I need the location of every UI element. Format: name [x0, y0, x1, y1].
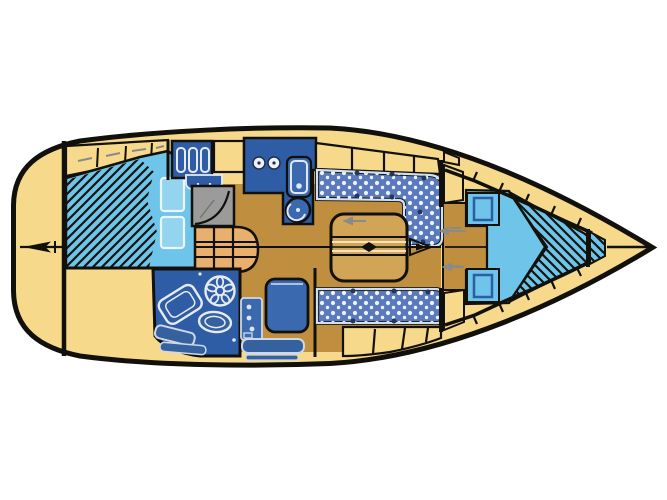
galley-round-sink: [286, 198, 310, 222]
berth-cushion-2: [161, 217, 184, 248]
galley-stove: [172, 141, 212, 178]
nav-seat-rail: [246, 355, 298, 360]
v-berth-step-2: [467, 269, 499, 302]
companionway-steps: [195, 227, 258, 272]
starboard-settee: [317, 289, 443, 324]
wet-locker: [192, 186, 234, 226]
head-compartment: [153, 269, 240, 356]
chart-table: [266, 279, 308, 332]
berth-cushion-1: [161, 178, 184, 211]
boat-floorplan-diagram: [0, 0, 667, 500]
saloon-table: [331, 214, 407, 281]
galley-sink: [287, 157, 311, 197]
galley-counter-small: [214, 141, 244, 172]
v-berth-step-1: [467, 193, 499, 225]
settee-upholstery: [317, 289, 443, 323]
nav-seat: [242, 339, 304, 353]
nav-floor-patch: [315, 325, 343, 352]
instrument-panel: [241, 298, 262, 340]
faucet-dot: [296, 183, 302, 189]
boat-floorplan-page: [0, 0, 667, 500]
